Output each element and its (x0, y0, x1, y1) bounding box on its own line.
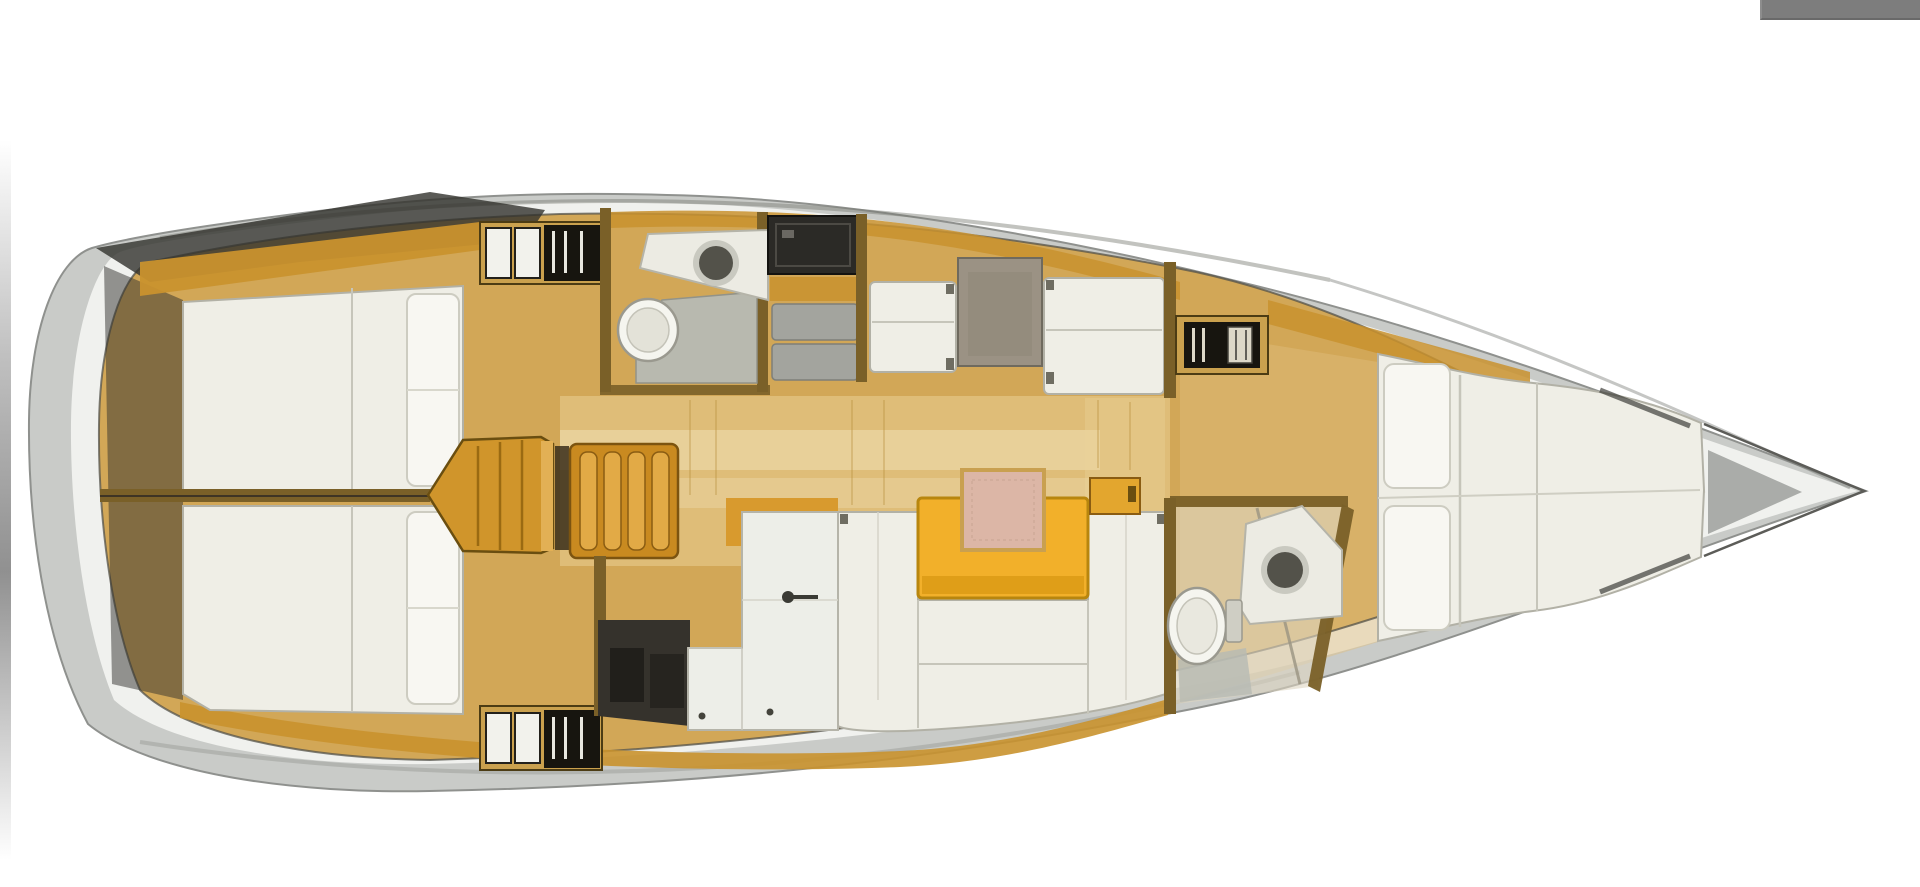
v-berth-pillow (1384, 364, 1450, 488)
dinette-settee-fwd (1044, 278, 1164, 394)
head-wall-bottom (600, 385, 770, 395)
settee-corner-mark (1157, 514, 1165, 524)
locker-door-icon (1228, 327, 1252, 363)
v-berth-pillow (1384, 506, 1450, 630)
counter-dot (699, 713, 706, 720)
screenshot-stage (0, 0, 1920, 887)
settee-corner-mark (1046, 372, 1054, 384)
counter-module-2 (772, 344, 858, 380)
fwd-cabin-cabinet (1176, 316, 1268, 374)
slit (1192, 328, 1195, 362)
table-top-item (962, 470, 1044, 550)
companionway-gap (555, 446, 569, 550)
aft-cabin-port (183, 286, 463, 490)
cistern (1226, 600, 1242, 642)
companionway-cabinet-bottom (480, 706, 602, 770)
galley-wall-right (856, 214, 867, 382)
settee-corner-mark (946, 284, 954, 294)
locker-door-icon (515, 228, 540, 278)
settee-corner-mark (1046, 280, 1054, 290)
sink-icon (1261, 546, 1309, 594)
oven-door (650, 654, 684, 708)
forward-cabin-v-berth (1378, 354, 1704, 641)
salon-table-shade (922, 576, 1084, 594)
head-wall-left (600, 208, 611, 392)
companionway-cabinet-top (480, 222, 602, 284)
stove-detail (782, 230, 794, 238)
counter-dot (767, 709, 774, 716)
counter-module-1 (772, 304, 858, 340)
companionway-steps (570, 444, 678, 558)
locker-door-icon (515, 713, 540, 763)
galley-top (768, 214, 867, 382)
locker-door-icon (486, 713, 511, 763)
engine-box-cap (541, 441, 553, 551)
galley-shelf (770, 277, 858, 301)
sink-icon (693, 240, 739, 286)
nav-seat-mark (1128, 486, 1136, 502)
counter-side-edge (726, 514, 742, 546)
stern-side-shadow (104, 266, 183, 700)
boat-floorplan (0, 0, 1920, 887)
dinette-settee-aft (870, 282, 956, 372)
settee-corner-mark (946, 358, 954, 370)
oven-door (610, 648, 644, 702)
head-wall-top (1170, 496, 1348, 507)
dinette-table-inner (968, 272, 1032, 356)
fwd-bulkhead-top (1164, 262, 1176, 398)
locker-door-icon (486, 228, 511, 278)
settee-corner-mark (840, 514, 848, 524)
slit (1202, 328, 1205, 362)
toilet-icon (618, 299, 678, 361)
aft-cabin-starboard (183, 506, 463, 714)
